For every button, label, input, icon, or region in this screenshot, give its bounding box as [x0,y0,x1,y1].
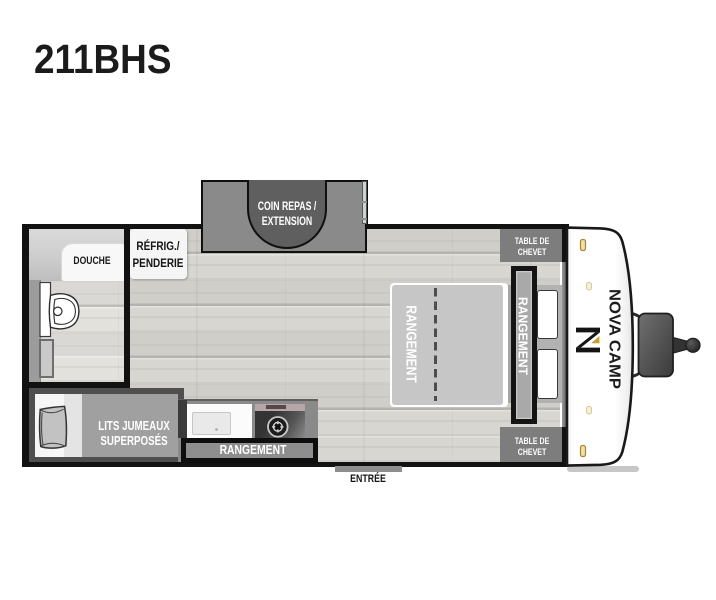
svg-text:NOVA CAMP: NOVA CAMP [606,289,623,389]
